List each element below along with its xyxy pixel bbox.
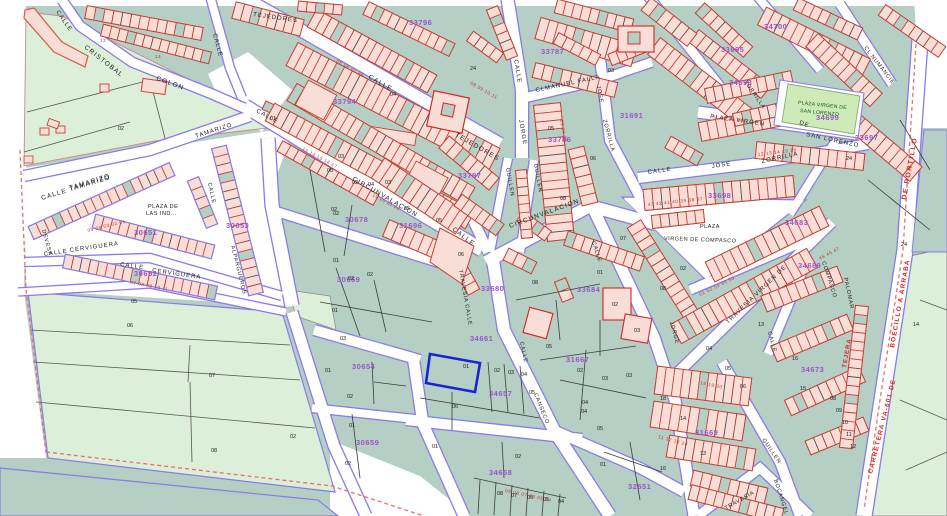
svg-text:14: 14 (913, 322, 919, 328)
svg-text:31669: 31669 (695, 428, 718, 437)
svg-text:02: 02 (515, 454, 521, 460)
svg-text:30652: 30652 (134, 269, 157, 278)
svg-text:01: 01 (600, 462, 606, 468)
svg-text:03: 03 (626, 373, 632, 379)
svg-text:06: 06 (452, 404, 458, 410)
svg-text:03: 03 (340, 336, 346, 342)
svg-text:05: 05 (725, 366, 731, 372)
svg-text:08: 08 (660, 286, 666, 292)
svg-text:02: 02 (345, 461, 351, 467)
svg-text:12: 12 (850, 444, 856, 450)
svg-text:PLAZA: PLAZA (700, 224, 720, 230)
svg-text:02: 02 (494, 368, 500, 374)
svg-text:13: 13 (758, 322, 764, 328)
svg-text:34673: 34673 (801, 365, 824, 374)
svg-text:07: 07 (209, 373, 215, 379)
svg-text:34693: 34693 (729, 78, 752, 87)
svg-text:03: 03 (338, 154, 344, 160)
svg-text:02: 02 (680, 266, 686, 272)
svg-text:04: 04 (558, 499, 564, 505)
svg-text:24: 24 (901, 242, 907, 248)
svg-text:03: 03 (508, 370, 514, 376)
svg-text:30651: 30651 (134, 228, 157, 237)
svg-text:33680: 33680 (481, 284, 504, 293)
svg-text:01: 01 (463, 364, 469, 370)
svg-text:32651: 32651 (628, 482, 651, 491)
svg-text:34661: 34661 (470, 334, 493, 343)
svg-text:04: 04 (390, 92, 396, 98)
svg-text:05: 05 (597, 426, 603, 432)
svg-text:12: 12 (100, 38, 106, 43)
svg-text:04: 04 (706, 346, 712, 352)
svg-text:33684: 33684 (577, 285, 601, 294)
svg-text:34658: 34658 (489, 468, 512, 477)
svg-text:34689: 34689 (798, 261, 821, 270)
svg-text:24: 24 (846, 156, 852, 162)
svg-text:04: 04 (581, 409, 587, 415)
svg-text:01: 01 (432, 444, 438, 450)
svg-text:31696: 31696 (399, 221, 422, 230)
svg-text:06: 06 (458, 252, 464, 258)
svg-text:10: 10 (842, 420, 848, 426)
svg-text:33794: 33794 (333, 97, 357, 106)
svg-text:08: 08 (560, 196, 566, 202)
svg-text:04: 04 (368, 182, 374, 188)
svg-text:14: 14 (155, 54, 161, 59)
svg-text:06: 06 (590, 156, 596, 162)
svg-text:05: 05 (436, 218, 442, 224)
svg-text:34657: 34657 (489, 389, 512, 398)
svg-text:01: 01 (597, 270, 603, 276)
svg-text:02: 02 (118, 126, 124, 132)
svg-text:02: 02 (352, 180, 358, 186)
svg-text:34699: 34699 (816, 113, 839, 122)
svg-text:30653: 30653 (226, 221, 249, 230)
svg-text:03: 03 (608, 68, 614, 74)
svg-text:05: 05 (404, 206, 410, 212)
svg-text:03: 03 (634, 328, 640, 334)
svg-text:03: 03 (385, 180, 391, 186)
svg-text:18: 18 (660, 396, 666, 402)
svg-text:02: 02 (348, 276, 354, 282)
svg-text:33787: 33787 (541, 47, 564, 56)
svg-text:33796: 33796 (409, 18, 432, 27)
svg-text:03: 03 (602, 376, 608, 382)
svg-text:24: 24 (470, 66, 476, 72)
svg-text:06: 06 (127, 323, 133, 329)
svg-text:33797: 33797 (458, 171, 481, 180)
svg-text:31667: 31667 (566, 355, 589, 364)
svg-text:02: 02 (347, 394, 353, 400)
svg-text:08: 08 (211, 448, 217, 454)
svg-text:02: 02 (612, 302, 618, 308)
svg-text:14: 14 (680, 416, 686, 422)
svg-text:01: 01 (349, 423, 355, 429)
svg-text:34683: 34683 (785, 218, 808, 227)
svg-text:04: 04 (582, 400, 588, 406)
svg-text:05: 05 (529, 390, 535, 396)
svg-text:33695: 33695 (721, 45, 744, 54)
svg-text:33698: 33698 (708, 191, 731, 200)
svg-text:01: 01 (325, 368, 331, 374)
svg-text:01: 01 (270, 116, 276, 122)
svg-text:02: 02 (331, 207, 337, 213)
svg-text:02: 02 (367, 272, 373, 278)
svg-text:05: 05 (546, 344, 552, 350)
svg-text:02: 02 (290, 434, 296, 440)
svg-text:11: 11 (846, 432, 852, 438)
svg-text:09: 09 (836, 408, 842, 414)
svg-text:30654: 30654 (352, 362, 376, 371)
svg-text:06: 06 (740, 384, 746, 390)
svg-text:30678: 30678 (345, 215, 368, 224)
svg-text:08: 08 (830, 396, 836, 402)
svg-text:PLAZA DE: PLAZA DE (148, 204, 178, 210)
svg-text:15: 15 (800, 386, 806, 392)
svg-text:02: 02 (577, 368, 583, 374)
svg-text:01: 01 (332, 308, 338, 314)
svg-text:30659: 30659 (356, 438, 379, 447)
svg-text:34700: 34700 (764, 22, 787, 31)
svg-text:LAS IND...: LAS IND... (146, 211, 177, 217)
svg-text:01: 01 (333, 258, 339, 264)
svg-text:16: 16 (792, 356, 798, 362)
svg-text:13: 13 (700, 451, 706, 457)
svg-text:05: 05 (131, 299, 137, 305)
svg-text:04: 04 (521, 372, 527, 378)
svg-text:08: 08 (532, 280, 538, 286)
svg-text:33697: 33697 (855, 133, 878, 142)
svg-text:16: 16 (660, 466, 666, 472)
svg-text:08: 08 (327, 168, 333, 174)
svg-text:05: 05 (548, 126, 554, 132)
svg-text:07: 07 (620, 236, 626, 242)
svg-text:08: 08 (497, 491, 503, 497)
svg-text:31691: 31691 (620, 111, 643, 120)
